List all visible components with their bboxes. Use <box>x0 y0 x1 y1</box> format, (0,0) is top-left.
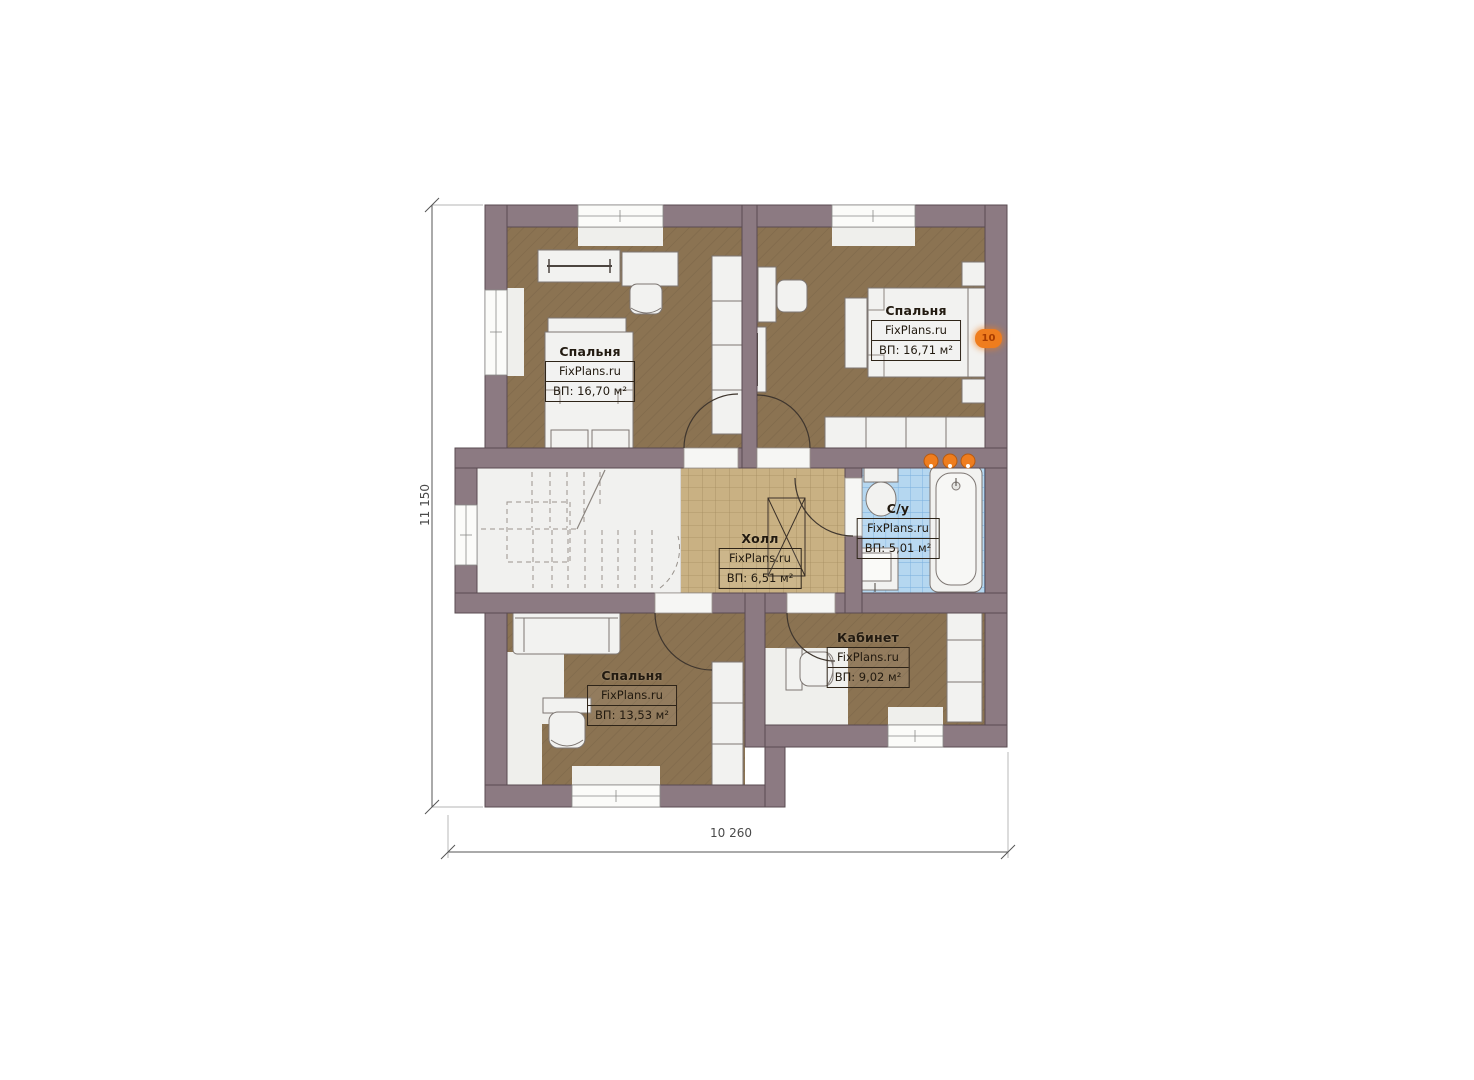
room-name: Спальня <box>587 668 677 683</box>
room-name: Спальня <box>871 303 961 318</box>
window-sill <box>832 227 915 246</box>
window <box>485 290 507 375</box>
room-info-box: FixPlans.ru ВП: 16,70 м² <box>545 361 635 402</box>
wall-bottom-divider <box>745 593 765 747</box>
fixture-dot <box>948 464 952 468</box>
room-area: ВП: 6,51 м² <box>720 569 801 588</box>
label-bedroom-bottom: Спальня FixPlans.ru ВП: 13,53 м² <box>587 668 677 726</box>
bed-headboard <box>548 318 626 332</box>
room-watermark: FixPlans.ru <box>828 648 909 668</box>
room-watermark: FixPlans.ru <box>588 686 676 706</box>
wall-right <box>985 205 1007 747</box>
dimension-width-label: 10 260 <box>710 826 752 840</box>
room-area: ВП: 13,53 м² <box>588 706 676 725</box>
room-name: С/у <box>857 501 940 516</box>
room-info-box: FixPlans.ru ВП: 5,01 м² <box>857 518 940 559</box>
room-info-box: FixPlans.ru ВП: 16,71 м² <box>871 320 961 361</box>
fixture-dot <box>929 464 933 468</box>
label-bathroom: С/у FixPlans.ru ВП: 5,01 м² <box>857 501 940 559</box>
room-info-box: FixPlans.ru ВП: 9,02 м² <box>827 647 910 688</box>
window <box>578 205 663 227</box>
room-watermark: FixPlans.ru <box>872 321 960 341</box>
room-name: Холл <box>719 531 802 546</box>
room-area: ВП: 16,71 м² <box>872 341 960 360</box>
window-sill <box>507 288 524 376</box>
room-area: ВП: 5,01 м² <box>858 539 939 558</box>
room-name: Кабинет <box>827 630 910 645</box>
wardrobe <box>825 417 985 450</box>
wardrobe <box>947 598 982 722</box>
label-office: Кабинет FixPlans.ru ВП: 9,02 м² <box>827 630 910 688</box>
chair <box>777 280 807 312</box>
desk <box>543 698 591 713</box>
window <box>832 205 915 227</box>
nightstand <box>962 262 985 286</box>
window <box>572 785 660 807</box>
wall-marker-badge: 10 <box>975 329 1002 348</box>
label-bedroom-top-right: Спальня FixPlans.ru ВП: 16,71 м² <box>871 303 961 361</box>
wall-bottom-right <box>765 725 1007 747</box>
wardrobe <box>712 662 743 785</box>
bathroom-accessories <box>924 454 975 468</box>
window <box>888 725 943 747</box>
dimension-height-label: 11 150 <box>418 484 432 526</box>
fixture-dot <box>966 464 970 468</box>
room-info-box: FixPlans.ru ВП: 13,53 м² <box>587 685 677 726</box>
wall-marker-text: 10 <box>982 334 996 344</box>
room-info-box: FixPlans.ru ВП: 6,51 м² <box>719 548 802 589</box>
room-area: ВП: 9,02 м² <box>828 668 909 687</box>
room-name: Спальня <box>545 344 635 359</box>
desk <box>622 252 678 286</box>
toilet-tank <box>864 468 898 482</box>
desk <box>758 267 776 322</box>
chair <box>630 284 662 314</box>
stairs-floor <box>477 468 681 593</box>
wall-bedroom-divider <box>742 205 757 468</box>
room-area: ВП: 16,70 м² <box>546 382 634 401</box>
window <box>455 505 477 565</box>
alcove-area <box>507 724 542 785</box>
floor-plan-page: Спальня FixPlans.ru ВП: 16,70 м² Спальня… <box>0 0 1474 1080</box>
room-watermark: FixPlans.ru <box>720 549 801 569</box>
wall-lower-horizontal <box>455 593 1007 613</box>
label-hall: Холл FixPlans.ru ВП: 6,51 м² <box>719 531 802 589</box>
room-watermark: FixPlans.ru <box>858 519 939 539</box>
wall-left-lower <box>485 595 507 807</box>
room-watermark: FixPlans.ru <box>546 362 634 382</box>
window-sill <box>572 766 660 785</box>
window-sill <box>578 227 663 246</box>
nightstand <box>962 379 985 403</box>
label-bedroom-top-left: Спальня FixPlans.ru ВП: 16,70 м² <box>545 344 635 402</box>
window-sill <box>888 707 943 725</box>
bed-bench <box>845 298 867 368</box>
